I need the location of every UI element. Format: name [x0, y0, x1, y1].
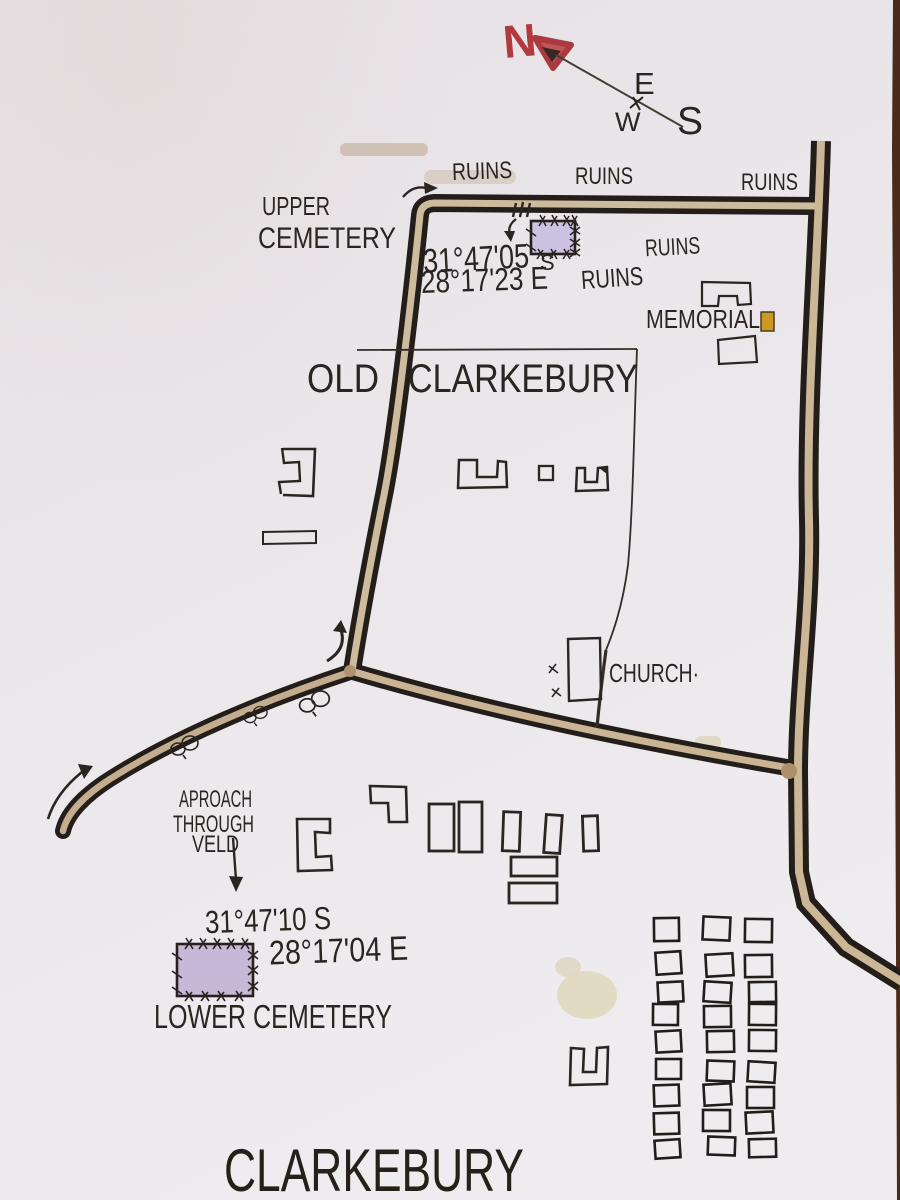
svg-text:RUINS: RUINS	[580, 261, 644, 295]
svg-text:28°17'04 E: 28°17'04 E	[268, 930, 408, 973]
svg-text:N: N	[501, 13, 539, 68]
svg-text:MEMORIAL: MEMORIAL	[646, 304, 760, 334]
svg-text:LOWER CEMETERY: LOWER CEMETERY	[154, 998, 392, 1035]
svg-text:APROACH: APROACH	[179, 786, 252, 813]
svg-text:OLD: OLD	[307, 357, 379, 401]
svg-text:RUINS: RUINS	[644, 232, 700, 262]
svg-text:CHURCH·: CHURCH·	[609, 658, 699, 688]
svg-text:CEMETERY: CEMETERY	[258, 222, 396, 255]
svg-text:28°17'23 E: 28°17'23 E	[420, 260, 548, 300]
svg-text:S: S	[677, 100, 703, 143]
svg-text:CLARKEBURY: CLARKEBURY	[224, 1137, 524, 1200]
svg-text:UPPER: UPPER	[262, 191, 330, 221]
svg-text:RUINS: RUINS	[575, 163, 633, 190]
svg-text:VELD: VELD	[192, 831, 239, 858]
svg-text:W: W	[615, 107, 641, 137]
svg-text:E: E	[634, 66, 655, 101]
svg-text:CLARKEBURY: CLARKEBURY	[408, 357, 638, 401]
svg-text:RUINS: RUINS	[741, 169, 798, 196]
svg-text:RUINS: RUINS	[452, 157, 513, 186]
